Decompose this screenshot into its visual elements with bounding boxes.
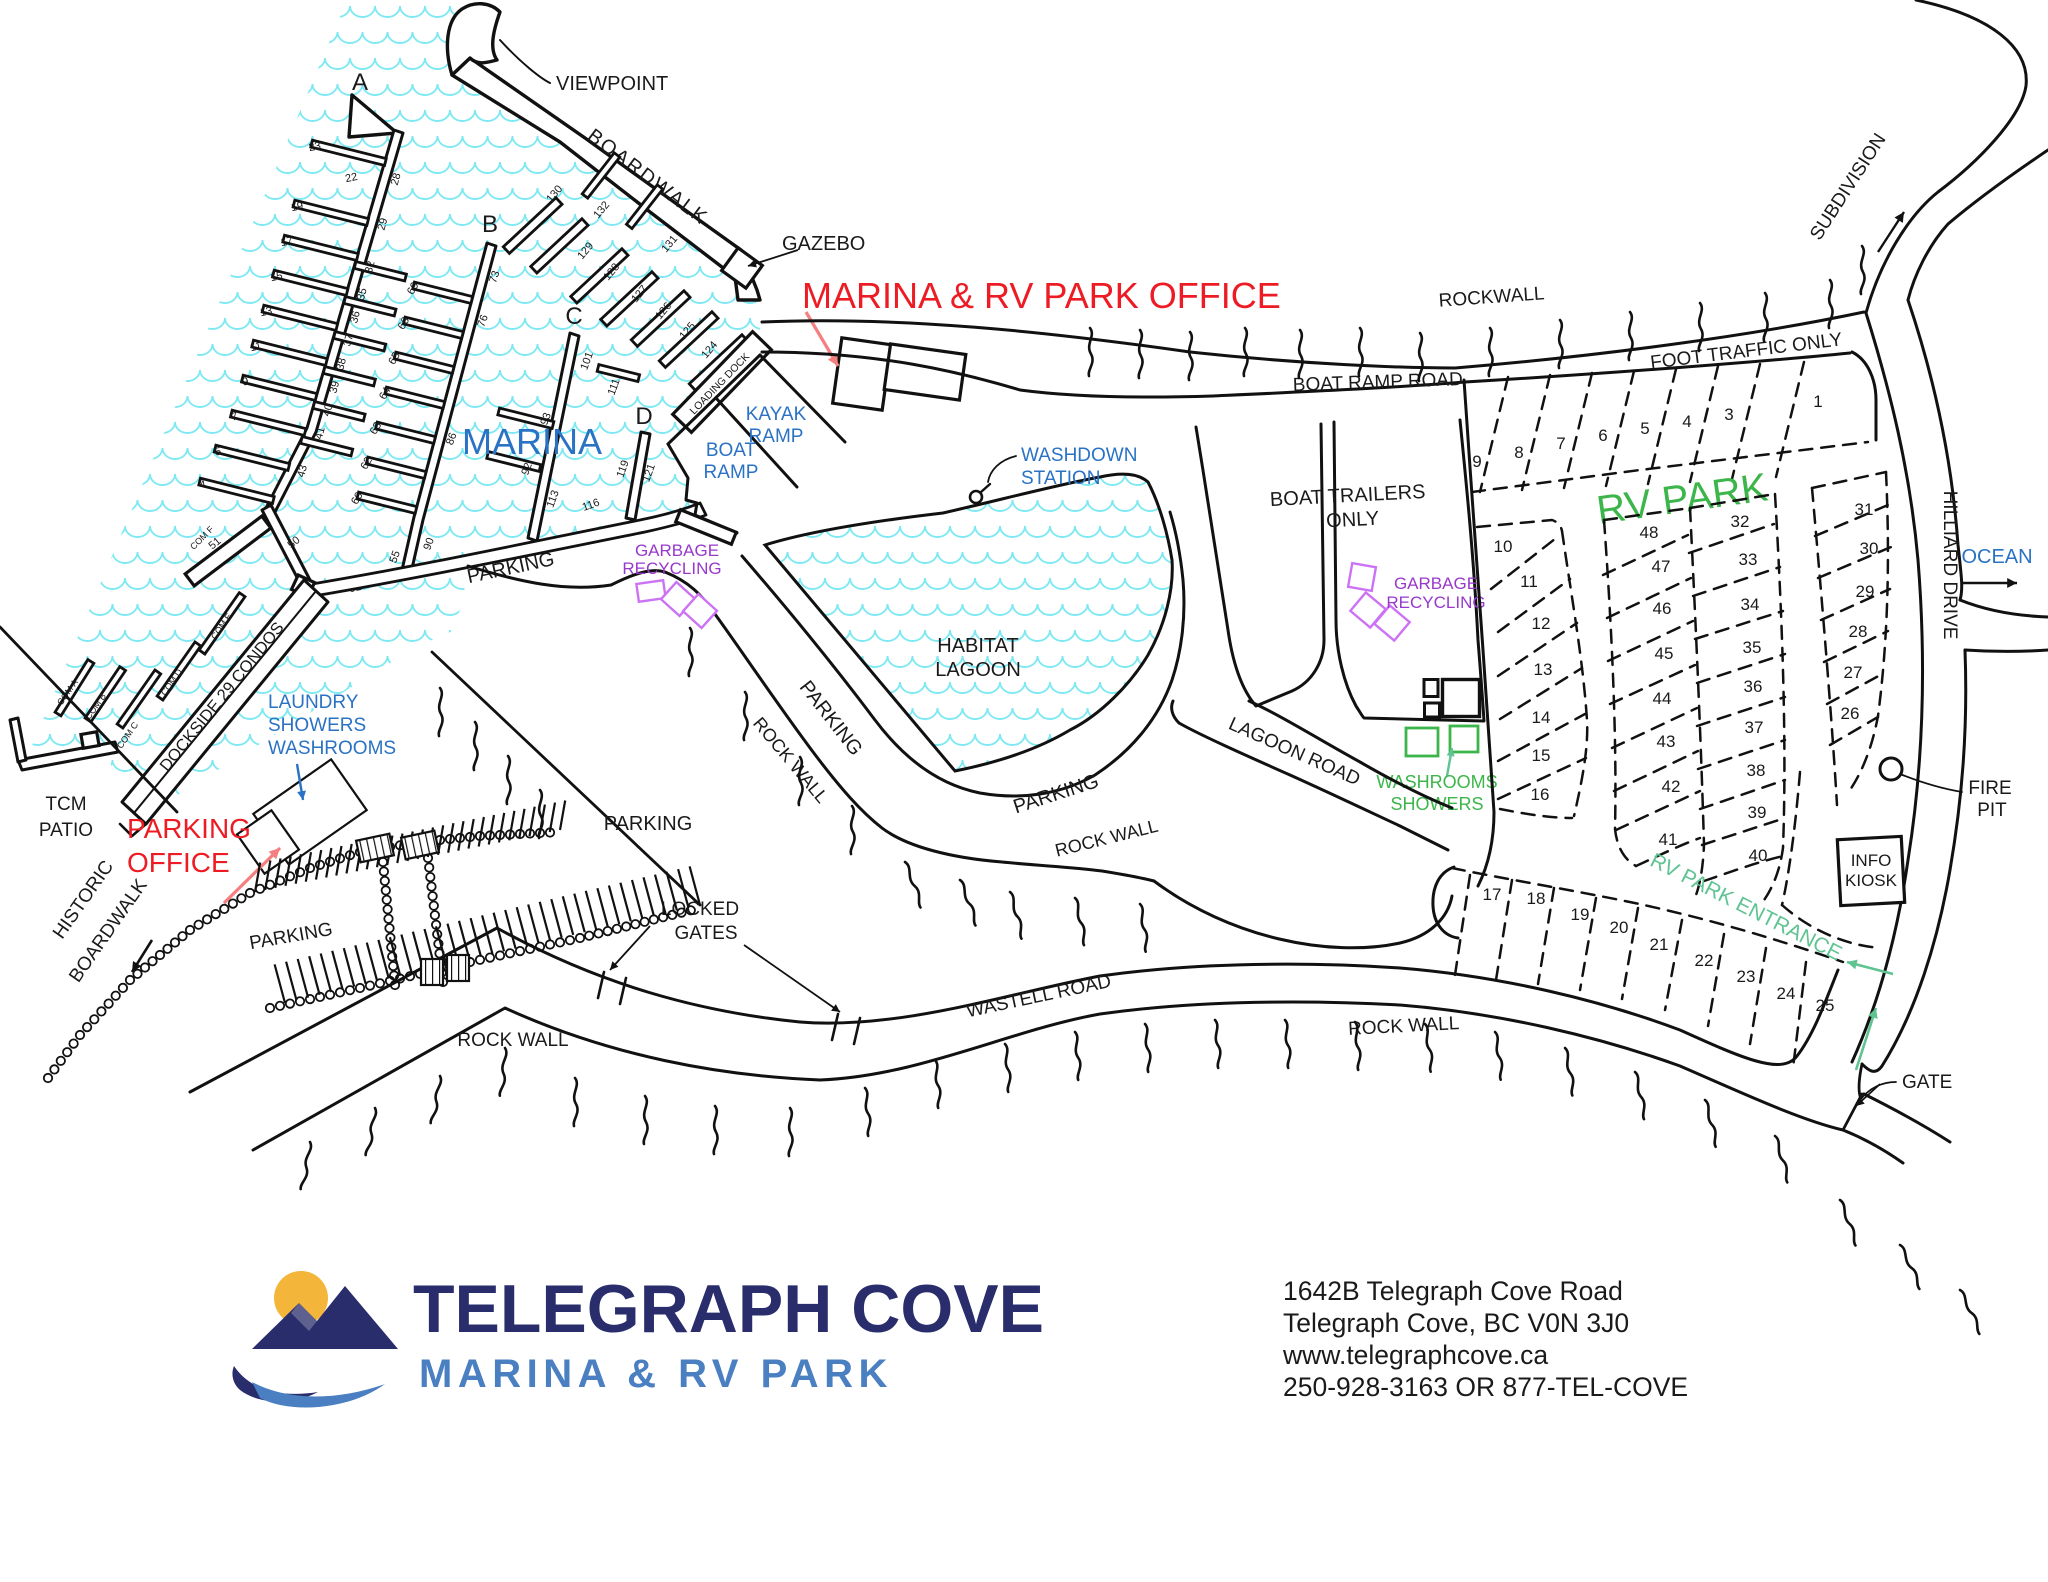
svg-text:18: 18	[1527, 889, 1546, 908]
svg-text:ONLY: ONLY	[1326, 508, 1380, 533]
svg-text:WASHROOMS: WASHROOMS	[268, 738, 396, 759]
svg-text:HABITAT: HABITAT	[937, 635, 1018, 657]
svg-text:PARKING: PARKING	[127, 813, 251, 844]
svg-text:11: 11	[1520, 572, 1538, 591]
svg-text:19: 19	[290, 200, 304, 214]
svg-text:GARBAGE: GARBAGE	[635, 541, 719, 560]
svg-text:15: 15	[1532, 746, 1551, 765]
svg-text:FIRE: FIRE	[1968, 778, 2011, 799]
svg-text:GARBAGE: GARBAGE	[1394, 574, 1478, 593]
svg-text:41: 41	[1659, 830, 1678, 849]
svg-text:GAZEBO: GAZEBO	[782, 233, 865, 255]
svg-text:35: 35	[1743, 638, 1762, 657]
svg-text:RAMP: RAMP	[704, 462, 759, 483]
svg-text:WASHDOWN: WASHDOWN	[1021, 445, 1137, 466]
svg-text:46: 46	[1653, 599, 1672, 618]
svg-text:20: 20	[1610, 918, 1629, 937]
svg-text:RAMP: RAMP	[749, 426, 804, 447]
svg-text:43: 43	[1657, 732, 1676, 751]
svg-text:17: 17	[280, 235, 294, 249]
svg-text:37: 37	[1745, 718, 1764, 737]
svg-text:LAGOON: LAGOON	[935, 659, 1021, 681]
svg-text:9: 9	[1472, 452, 1481, 471]
svg-text:28: 28	[1849, 622, 1868, 641]
svg-text:www.telegraphcove.ca: www.telegraphcove.ca	[1282, 1340, 1548, 1370]
svg-text:44: 44	[1653, 689, 1672, 708]
svg-text:RECYCLING: RECYCLING	[1386, 593, 1485, 612]
svg-text:3: 3	[1724, 405, 1733, 424]
svg-text:ROCK WALL: ROCK WALL	[457, 1030, 568, 1051]
svg-text:1642B Telegraph Cove Road: 1642B Telegraph Cove Road	[1283, 1276, 1623, 1306]
svg-text:250-928-3163 OR 877-TEL-COVE: 250-928-3163 OR 877-TEL-COVE	[1283, 1372, 1688, 1402]
svg-text:15: 15	[269, 270, 283, 284]
svg-text:4: 4	[1682, 412, 1691, 431]
svg-text:KAYAK: KAYAK	[746, 404, 807, 425]
svg-text:1: 1	[1813, 392, 1822, 411]
svg-text:A: A	[352, 69, 368, 96]
svg-text:PATIO: PATIO	[39, 820, 93, 841]
svg-text:17: 17	[1483, 885, 1502, 904]
svg-text:10: 10	[1494, 537, 1513, 556]
svg-text:33: 33	[1739, 550, 1758, 569]
svg-text:TCM: TCM	[45, 794, 86, 815]
svg-text:39: 39	[1748, 803, 1767, 822]
svg-text:32: 32	[1731, 512, 1750, 531]
svg-text:23: 23	[1737, 967, 1756, 986]
svg-text:Telegraph Cove, BC V0N 3J0: Telegraph Cove, BC V0N 3J0	[1283, 1308, 1629, 1338]
svg-text:22: 22	[344, 171, 358, 185]
svg-text:GATES: GATES	[675, 923, 738, 944]
svg-text:STATION: STATION	[1021, 468, 1101, 489]
svg-text:MARINA & RV PARK OFFICE: MARINA & RV PARK OFFICE	[802, 275, 1281, 316]
svg-text:C: C	[565, 303, 582, 330]
svg-text:BOAT: BOAT	[706, 440, 757, 461]
svg-text:MARINA & RV PARK: MARINA & RV PARK	[419, 1352, 893, 1396]
svg-text:42: 42	[1662, 777, 1681, 796]
svg-text:34: 34	[1741, 595, 1760, 614]
svg-text:13: 13	[259, 305, 273, 319]
svg-text:RECYCLING: RECYCLING	[622, 559, 721, 578]
svg-text:LAUNDRY: LAUNDRY	[268, 692, 359, 713]
svg-text:D: D	[635, 403, 652, 430]
svg-text:OCEAN: OCEAN	[1961, 546, 2032, 568]
svg-text:13: 13	[1534, 660, 1553, 679]
svg-text:19: 19	[1571, 905, 1590, 924]
svg-text:23: 23	[308, 140, 322, 154]
svg-text:38: 38	[1747, 761, 1766, 780]
svg-text:47: 47	[1652, 557, 1671, 576]
svg-text:6: 6	[1598, 426, 1607, 445]
svg-text:21: 21	[1650, 935, 1669, 954]
svg-text:TELEGRAPH COVE: TELEGRAPH COVE	[413, 1271, 1044, 1347]
svg-text:KIOSK: KIOSK	[1845, 871, 1898, 890]
svg-text:36: 36	[1744, 677, 1763, 696]
svg-text:5: 5	[1640, 419, 1649, 438]
svg-text:12: 12	[1532, 614, 1551, 633]
svg-text:16: 16	[1531, 785, 1550, 804]
svg-text:30: 30	[1860, 539, 1879, 558]
svg-text:27: 27	[1844, 663, 1863, 682]
svg-text:26: 26	[1841, 704, 1860, 723]
svg-text:24: 24	[1777, 984, 1796, 1003]
svg-text:48: 48	[1640, 523, 1659, 542]
svg-text:7: 7	[1556, 434, 1565, 453]
svg-text:SHOWERS: SHOWERS	[268, 715, 366, 736]
svg-text:INFO: INFO	[1851, 851, 1892, 870]
svg-text:8: 8	[1514, 443, 1523, 462]
svg-text:31: 31	[1855, 500, 1874, 519]
svg-text:PARKING: PARKING	[604, 813, 693, 835]
svg-text:GATE: GATE	[1902, 1072, 1952, 1093]
svg-text:SHOWERS: SHOWERS	[1390, 794, 1483, 814]
svg-text:14: 14	[1532, 708, 1551, 727]
svg-text:25: 25	[1816, 996, 1835, 1015]
svg-text:29: 29	[1856, 582, 1875, 601]
svg-text:OFFICE: OFFICE	[127, 847, 230, 878]
svg-text:B: B	[482, 211, 498, 238]
svg-text:HILLIARD DRIVE: HILLIARD DRIVE	[1939, 491, 1960, 640]
svg-text:40: 40	[1749, 846, 1768, 865]
svg-text:MARINA: MARINA	[462, 421, 602, 462]
svg-text:PIT: PIT	[1977, 800, 2007, 821]
svg-text:11: 11	[249, 340, 263, 354]
svg-text:22: 22	[1695, 951, 1714, 970]
svg-text:45: 45	[1655, 644, 1674, 663]
svg-text:VIEWPOINT: VIEWPOINT	[556, 73, 668, 95]
